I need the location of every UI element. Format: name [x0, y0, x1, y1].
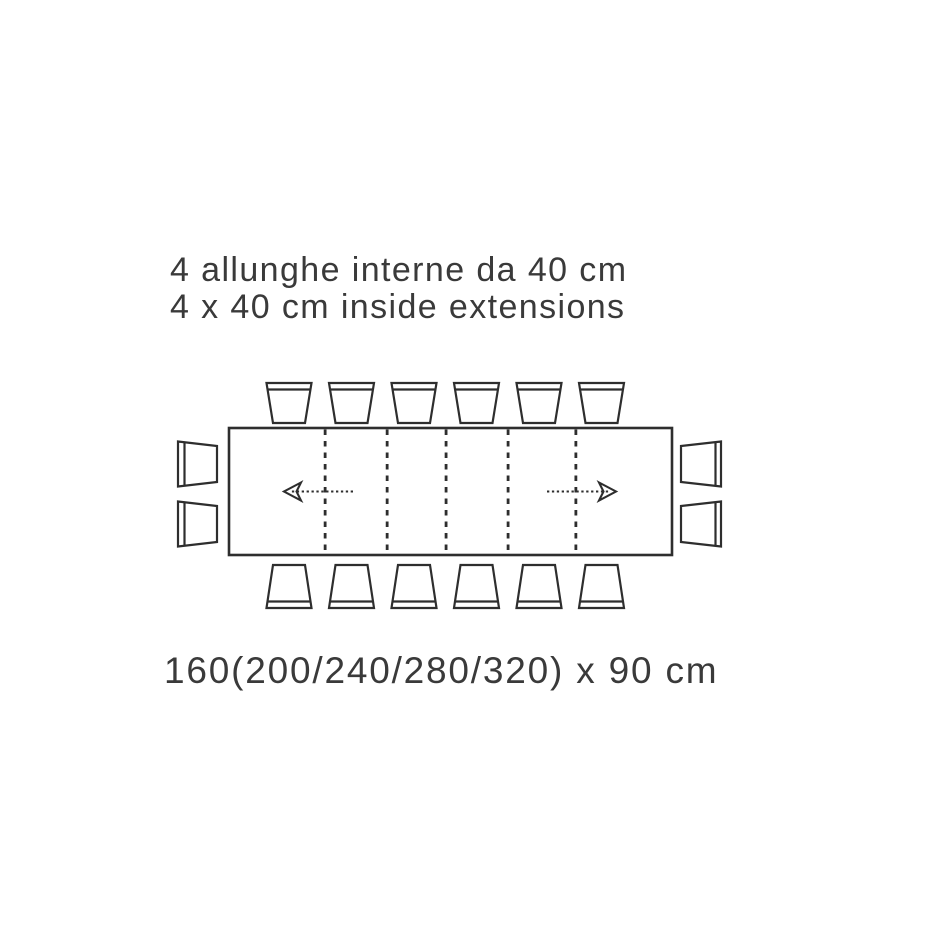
product-spec-sheet: 4 allunghe interne da 40 cm 4 x 40 cm in… [0, 0, 950, 950]
dimension-label: 160(200/240/280/320) x 90 cm [164, 651, 718, 691]
table-diagram [0, 0, 950, 950]
